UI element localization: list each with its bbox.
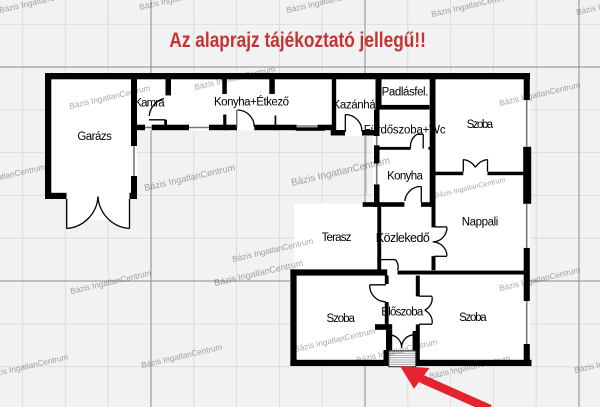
svg-text:Konyha: Konyha bbox=[387, 170, 423, 182]
svg-text:Nappali: Nappali bbox=[462, 217, 499, 229]
svg-text:Szoba: Szoba bbox=[467, 119, 494, 131]
svg-text:Kazánház: Kazánház bbox=[333, 100, 382, 112]
svg-text:Garázs: Garázs bbox=[77, 131, 112, 143]
svg-text:Terasz: Terasz bbox=[322, 232, 352, 244]
svg-text:Az alaprajz tájékoztató jelleg: Az alaprajz tájékoztató jellegű!! bbox=[169, 28, 426, 52]
svg-text:Padlásfel.: Padlásfel. bbox=[382, 87, 429, 99]
svg-text:Konyha+Étkező: Konyha+Étkező bbox=[214, 95, 289, 108]
svg-text:Előszoba: Előszoba bbox=[381, 307, 424, 319]
svg-text:Kamra: Kamra bbox=[134, 97, 165, 109]
svg-text:Szoba: Szoba bbox=[459, 312, 487, 324]
svg-text:Szoba: Szoba bbox=[326, 313, 355, 325]
svg-text:Fürdőszoba+Wc: Fürdőszoba+Wc bbox=[364, 124, 446, 136]
svg-text:Közlekedő: Közlekedő bbox=[376, 231, 430, 245]
